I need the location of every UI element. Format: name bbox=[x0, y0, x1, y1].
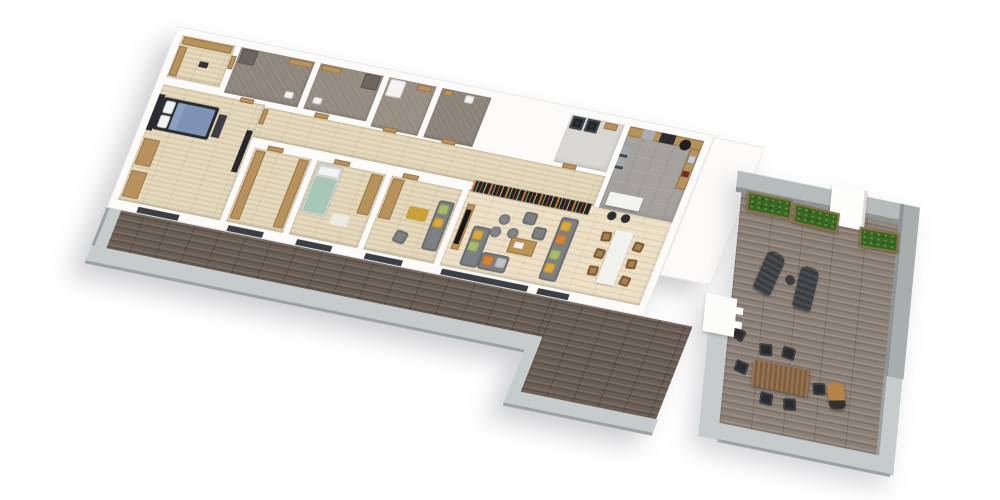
entry-step-2 bbox=[735, 321, 743, 329]
terrace-chair-1 bbox=[759, 343, 772, 357]
entry-step-1 bbox=[736, 307, 744, 315]
terrace-block bbox=[718, 188, 915, 475]
barrel-grill bbox=[827, 382, 846, 409]
entry-step-block bbox=[702, 293, 737, 337]
terrace-chair-4 bbox=[783, 398, 796, 411]
terrace-chair-6 bbox=[812, 383, 825, 396]
floorplan-scene bbox=[0, 0, 1000, 500]
apartment-block bbox=[107, 26, 715, 317]
